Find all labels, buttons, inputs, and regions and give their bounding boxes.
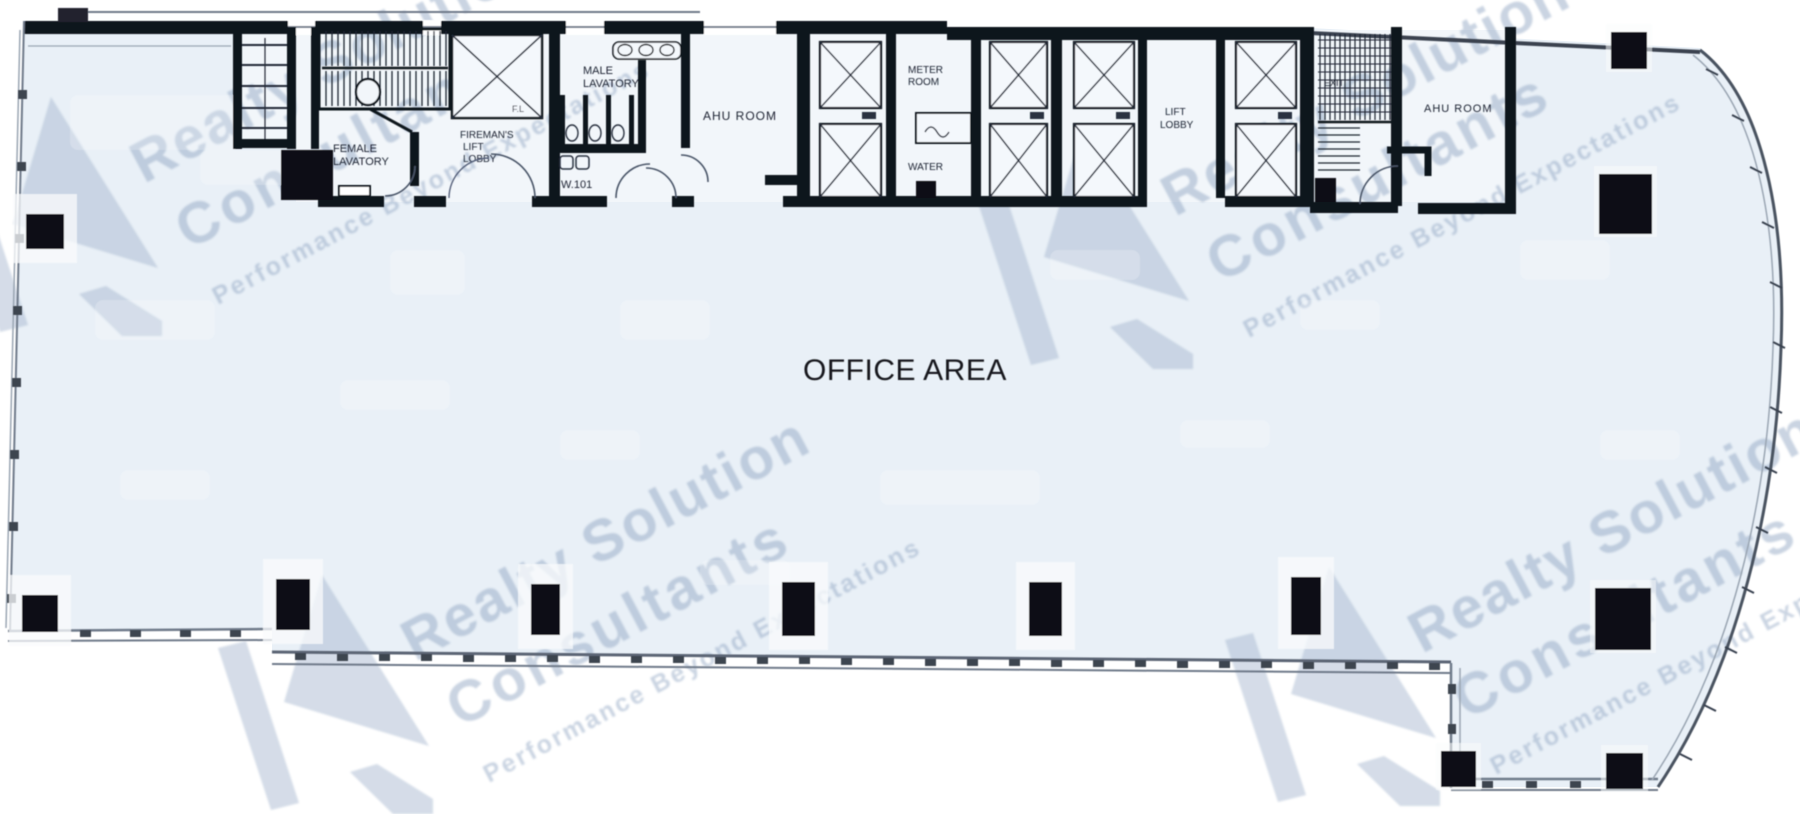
svg-text:EXIT: EXIT: [1324, 78, 1345, 88]
svg-text:WATER: WATER: [908, 162, 943, 173]
svg-text:FEMALE: FEMALE: [333, 143, 377, 155]
svg-text:OFFICE AREA: OFFICE AREA: [803, 354, 1007, 387]
svg-text:AHU ROOM: AHU ROOM: [1424, 103, 1493, 115]
svg-text:AHU ROOM: AHU ROOM: [703, 109, 777, 123]
svg-text:LOBBY: LOBBY: [1160, 120, 1194, 131]
svg-text:LIFT: LIFT: [1165, 107, 1186, 118]
svg-text:LAVATORY: LAVATORY: [333, 156, 390, 168]
svg-text:FIREMAN'S: FIREMAN'S: [460, 130, 514, 141]
svg-text:LIFT: LIFT: [463, 142, 484, 153]
svg-text:ROOM: ROOM: [908, 77, 939, 88]
svg-text:MALE: MALE: [583, 65, 613, 77]
svg-text:F.L: F.L: [512, 104, 524, 114]
svg-text:LAVATORY: LAVATORY: [583, 78, 640, 90]
svg-text:W.101: W.101: [561, 179, 592, 191]
svg-text:METER: METER: [908, 65, 943, 76]
